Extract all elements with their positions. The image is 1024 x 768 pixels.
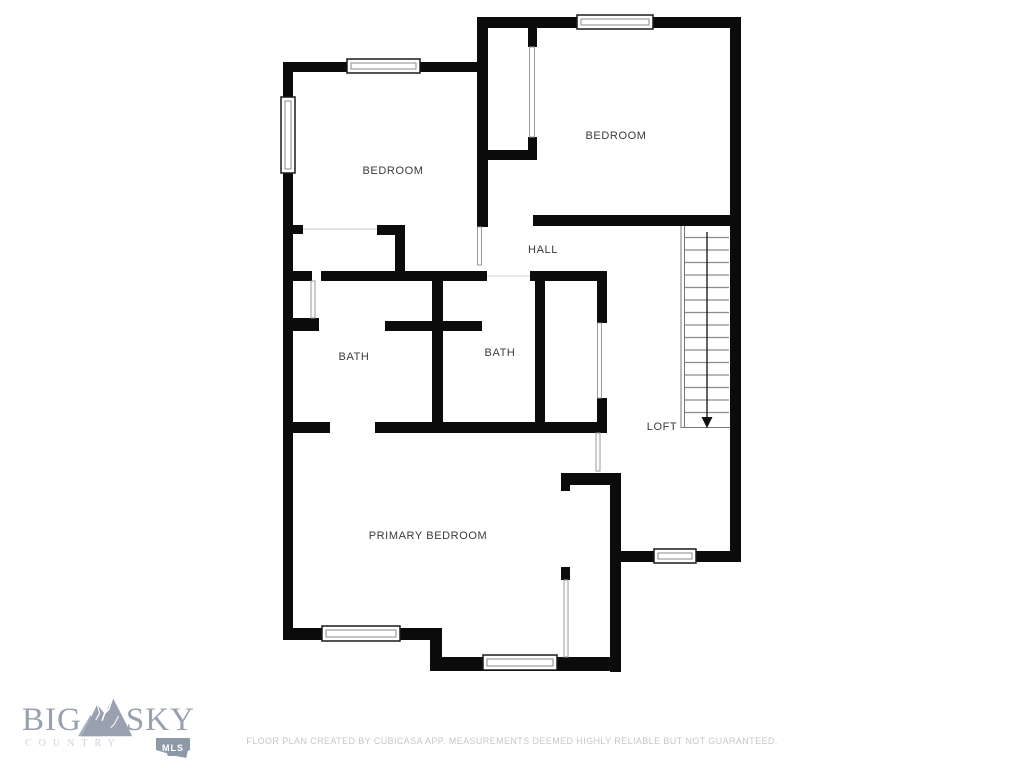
stairs-down-arrow-icon	[702, 417, 713, 428]
footer-disclaimer: FLOOR PLAN CREATED BY CUBICASA APP. MEAS…	[0, 736, 1024, 746]
window	[483, 655, 557, 670]
room-label-bedroom-left: BEDROOM	[362, 165, 423, 177]
room-label-loft: LOFT	[647, 421, 678, 433]
window	[322, 626, 400, 641]
room-label-bedroom-right: BEDROOM	[585, 130, 646, 142]
walls-layer	[283, 17, 741, 672]
door-leaf	[596, 433, 600, 471]
room-label-primary-bedroom: PRIMARY BEDROOM	[369, 530, 488, 542]
floor-plan-page: BEDROOM BEDROOM HALL BATH BATH LOFT PRIM…	[0, 0, 1024, 768]
door-leaf	[564, 580, 568, 657]
room-label-bath-right: BATH	[485, 347, 516, 359]
door-leaf	[530, 47, 535, 137]
room-label-hall: HALL	[528, 244, 558, 256]
floor-plan-drawing	[0, 0, 1024, 768]
door-leaf	[598, 323, 602, 398]
brand-word-sky: SKY	[126, 704, 195, 737]
room-label-bath-left: BATH	[339, 351, 370, 363]
stairs	[681, 226, 730, 428]
window	[654, 549, 696, 563]
window	[347, 59, 420, 73]
brand-logo-wordmark: BIG SKY	[22, 694, 202, 737]
window	[577, 15, 653, 29]
windows-layer	[281, 15, 696, 670]
door-leaf	[311, 281, 315, 318]
door-leaf	[478, 227, 482, 265]
brand-word-big: BIG	[22, 704, 82, 737]
window	[281, 97, 295, 173]
